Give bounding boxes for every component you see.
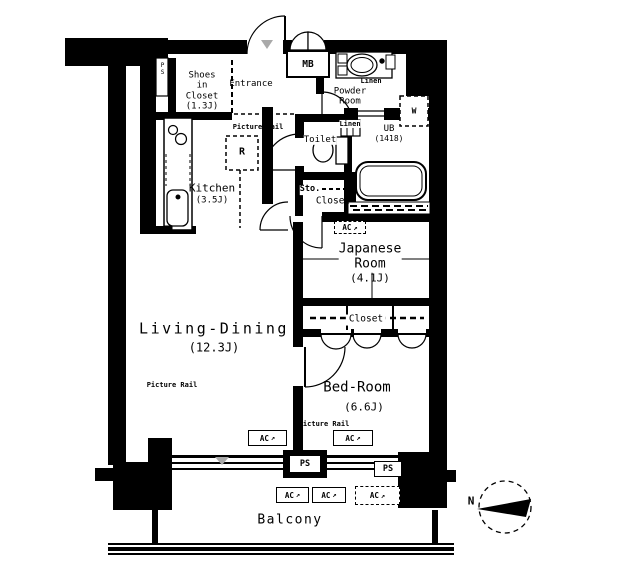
compass-needle-icon xyxy=(477,499,531,517)
picture-rail-label-living: Picture Rail xyxy=(147,381,198,389)
room-label-living-dining: Living-Dining (12.3J) xyxy=(139,320,289,355)
closet-label-bedroom: Closet xyxy=(346,315,386,326)
stove-burner xyxy=(176,134,187,145)
storage-label: Sto. xyxy=(300,185,320,195)
ac-outdoor-unit-1: AC↗ xyxy=(276,487,309,503)
floor-plan-page: Shoes in Closet (1.3J) PS Entrance MB Li… xyxy=(0,0,640,569)
linen-label-bottom: Linen xyxy=(339,120,360,128)
compass xyxy=(477,481,531,533)
toilet-tank xyxy=(336,137,348,164)
room-label-powder: Powder Room xyxy=(334,87,367,108)
closet-label-hall: Closet xyxy=(316,197,350,208)
ac-unit-living: AC↗ xyxy=(248,430,287,446)
room-label-balcony: Balcony xyxy=(257,514,322,529)
closet-door-arc xyxy=(398,334,426,348)
ac-label: AC xyxy=(260,434,269,443)
powder-shelf xyxy=(338,66,347,75)
pipe-shaft-1: PS xyxy=(289,455,321,473)
bathtub-inner xyxy=(360,166,422,196)
ac-label: AC xyxy=(370,491,379,500)
living-dining-name: Living-Dining xyxy=(139,320,289,337)
room-label-bedroom: Bed-Room (6.6J) xyxy=(323,380,390,415)
room-label-kitchen: Kitchen (3.5J) xyxy=(189,183,235,206)
japanese-name2: Room xyxy=(339,258,402,273)
ac-unit-japanese: AC↗ xyxy=(334,221,366,234)
picture-rail-label-bedroom: Picture Rail xyxy=(299,420,350,428)
shoes-line1: Shoes xyxy=(186,70,219,80)
room-label-unit-bath: UB (1418) xyxy=(375,124,404,144)
shoes-area: (1.3J) xyxy=(186,101,219,111)
powder-cabinet xyxy=(386,55,395,69)
room-label-entrance: Entrance xyxy=(229,79,272,89)
compass-north-label: N xyxy=(468,496,475,509)
living-dining-area: (12.3J) xyxy=(139,342,289,356)
bedroom-area: (6.6J) xyxy=(337,402,390,415)
washer-label: W xyxy=(412,106,417,115)
linen-label-top: Linen xyxy=(360,77,381,85)
basin-faucet xyxy=(380,59,384,63)
counter-end xyxy=(164,226,172,233)
japanese-name1: Japanese xyxy=(339,243,402,258)
ac-outdoor-unit-3: AC↗ xyxy=(355,486,400,505)
sink-faucet xyxy=(176,195,180,199)
room-label-toilet: Toilet xyxy=(304,135,337,145)
ac-arrow-icon: ↗ xyxy=(381,492,385,500)
ac-outdoor-unit-2: AC↗ xyxy=(312,487,346,503)
room-label-shoes-closet: Shoes in Closet (1.3J) xyxy=(186,70,219,111)
closet-door-arc xyxy=(353,334,381,348)
ac-arrow-icon: ↗ xyxy=(356,434,360,442)
refrigerator-label: R xyxy=(239,146,245,158)
room-label-japanese: Japanese Room (4.1J) xyxy=(339,243,402,286)
powder-line1: Powder xyxy=(334,87,367,97)
ac-unit-bedroom: AC↗ xyxy=(333,430,373,446)
japanese-area: (4.1J) xyxy=(339,273,402,286)
pipe-shaft-small-label: PS xyxy=(159,62,165,76)
meter-box: MB xyxy=(286,50,330,78)
ac-arrow-icon: ↗ xyxy=(271,434,275,442)
meter-box-door-left xyxy=(290,32,308,50)
ub-name: UB xyxy=(375,124,404,134)
powder-basin-inner xyxy=(351,58,373,73)
shoes-line2: in xyxy=(186,81,219,91)
balcony-railing xyxy=(108,543,454,555)
ac-label: AC xyxy=(342,223,351,232)
kitchen-name: Kitchen xyxy=(189,183,235,196)
kitchen-fixtures xyxy=(164,118,258,233)
meter-box-door-right xyxy=(308,32,326,50)
stove-burner xyxy=(169,126,178,135)
powder-line2: Room xyxy=(334,97,367,107)
ub-size: (1418) xyxy=(375,135,404,144)
direction-markers xyxy=(215,40,273,465)
hall-door-arc xyxy=(260,202,288,230)
bedroom-name: Bed-Room xyxy=(323,380,390,396)
entrance-door-arc xyxy=(247,16,285,54)
hatched-wall xyxy=(348,202,430,214)
pipe-shaft-2: PS xyxy=(374,461,402,477)
ac-label: AC xyxy=(321,491,330,500)
ac-arrow-icon: ↗ xyxy=(332,491,336,499)
ac-arrow-icon: ↗ xyxy=(353,224,357,232)
kitchen-area: (3.5J) xyxy=(189,195,235,205)
shoes-line3: Closet xyxy=(186,91,219,101)
picture-rail-label-hall: Picture Rail xyxy=(233,123,284,131)
entrance-marker-icon xyxy=(261,40,273,49)
ac-label: AC xyxy=(285,491,294,500)
ac-label: AC xyxy=(345,434,354,443)
ac-arrow-icon: ↗ xyxy=(296,491,300,499)
powder-shelf xyxy=(338,54,347,63)
closet-door-arc xyxy=(321,334,351,349)
floorplan-linework xyxy=(0,0,640,569)
